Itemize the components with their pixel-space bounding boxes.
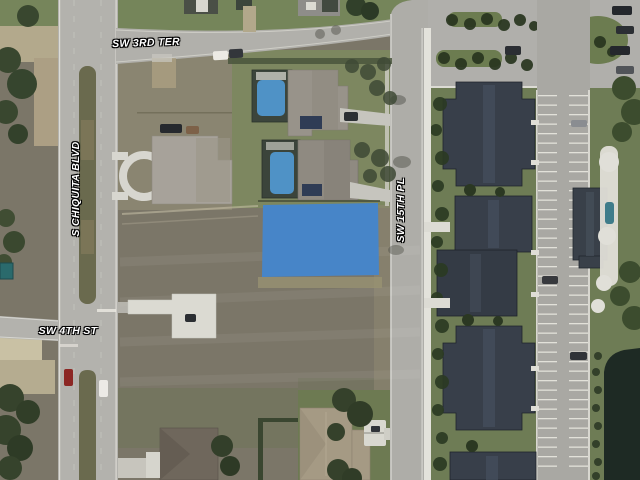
parked-dark-car	[160, 124, 182, 133]
swimming-pool	[257, 80, 285, 116]
condo-complex	[428, 0, 640, 480]
solar-panels	[300, 116, 322, 129]
house-bottom-right	[298, 388, 390, 480]
median-strip	[79, 66, 96, 304]
pond	[604, 348, 640, 480]
sidewalk-west	[385, 58, 389, 206]
white-car	[99, 380, 108, 397]
highlighted-parcel[interactable]	[262, 203, 379, 277]
trailer	[186, 126, 199, 134]
teal-container	[0, 263, 13, 279]
sidewalk-east	[424, 28, 431, 480]
solar-panels	[302, 184, 322, 196]
swimming-pool	[270, 152, 294, 194]
parked-car-on-pad	[185, 314, 196, 322]
map-canvas	[0, 0, 640, 480]
aerial-map[interactable]: SW 3RD TER S CHIQUITA BLVD SW 15TH PL SW…	[0, 0, 640, 480]
dirt-path	[243, 6, 256, 32]
community-pool	[605, 202, 614, 224]
hedge-line	[228, 58, 392, 64]
red-car	[64, 369, 73, 386]
